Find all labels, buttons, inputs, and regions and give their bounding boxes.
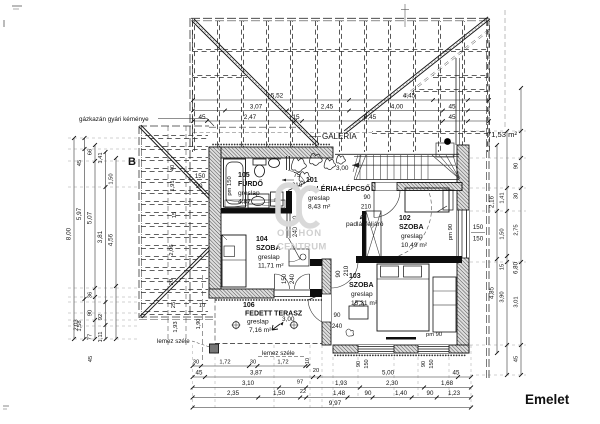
svg-text:90: 90 bbox=[335, 270, 342, 277]
svg-text:2,75: 2,75 bbox=[514, 224, 520, 235]
svg-text:20: 20 bbox=[313, 368, 319, 374]
svg-text:20: 20 bbox=[169, 279, 175, 285]
svg-text:greslap: greslap bbox=[247, 319, 269, 326]
svg-text:greslap: greslap bbox=[308, 195, 330, 202]
svg-text:lemez széle: lemez széle bbox=[157, 338, 190, 345]
svg-text:SZOBA: SZOBA bbox=[349, 282, 374, 289]
svg-text:GALÉRIA: GALÉRIA bbox=[322, 132, 357, 141]
svg-text:4,87: 4,87 bbox=[238, 199, 251, 206]
svg-text:greslap: greslap bbox=[258, 254, 280, 261]
svg-text:1,11: 1,11 bbox=[98, 332, 104, 343]
svg-text:106: 106 bbox=[243, 302, 255, 309]
svg-text:71,53 m²: 71,53 m² bbox=[487, 130, 517, 139]
svg-text:lemez széle: lemez széle bbox=[262, 350, 295, 357]
svg-text:2,45: 2,45 bbox=[321, 104, 334, 111]
svg-text:CENTRUM: CENTRUM bbox=[277, 242, 327, 253]
svg-text:9,97: 9,97 bbox=[329, 400, 342, 407]
svg-text:1,72: 1,72 bbox=[277, 360, 288, 366]
svg-text:45: 45 bbox=[453, 370, 460, 377]
svg-text:2,06: 2,06 bbox=[169, 244, 175, 255]
svg-text:3,07: 3,07 bbox=[250, 104, 263, 111]
svg-text:15: 15 bbox=[172, 212, 178, 218]
svg-text:2,03: 2,03 bbox=[74, 319, 80, 330]
svg-text:90: 90 bbox=[356, 361, 362, 367]
svg-text:1,50: 1,50 bbox=[500, 228, 506, 239]
svg-text:1,40: 1,40 bbox=[395, 390, 408, 397]
svg-text:30: 30 bbox=[514, 193, 520, 199]
svg-text:77: 77 bbox=[88, 334, 94, 340]
svg-text:1,50: 1,50 bbox=[109, 173, 115, 184]
svg-text:1,90: 1,90 bbox=[196, 319, 202, 330]
svg-text:8,43 m²: 8,43 m² bbox=[308, 204, 331, 211]
svg-text:90: 90 bbox=[364, 194, 371, 201]
svg-text:66: 66 bbox=[88, 149, 94, 155]
svg-text:6,80: 6,80 bbox=[513, 261, 520, 274]
svg-text:45: 45 bbox=[88, 356, 94, 362]
svg-text:4,00: 4,00 bbox=[391, 104, 404, 111]
svg-text:7,16 m²: 7,16 m² bbox=[249, 327, 272, 334]
svg-text:5,07: 5,07 bbox=[87, 211, 94, 224]
svg-text:1,41: 1,41 bbox=[98, 152, 104, 163]
svg-text:1,41: 1,41 bbox=[500, 192, 506, 203]
svg-text:103: 103 bbox=[349, 273, 361, 280]
svg-text:90: 90 bbox=[196, 183, 203, 190]
svg-text:10: 10 bbox=[199, 303, 205, 309]
svg-text:1,50: 1,50 bbox=[273, 390, 286, 397]
svg-text:pm 90: pm 90 bbox=[426, 332, 442, 338]
svg-text:40: 40 bbox=[170, 165, 176, 171]
svg-text:1,91: 1,91 bbox=[170, 180, 176, 191]
svg-text:1,93: 1,93 bbox=[335, 380, 348, 387]
svg-text:45: 45 bbox=[448, 114, 456, 121]
svg-text:150: 150 bbox=[473, 224, 484, 231]
svg-text:90: 90 bbox=[514, 163, 520, 169]
svg-text:75: 75 bbox=[294, 172, 301, 179]
svg-text:150: 150 bbox=[282, 273, 288, 284]
svg-text:6,45: 6,45 bbox=[364, 114, 377, 121]
svg-text:3,81: 3,81 bbox=[97, 230, 104, 243]
svg-text:90: 90 bbox=[421, 361, 427, 367]
svg-text:greslap: greslap bbox=[351, 291, 373, 298]
svg-text:45: 45 bbox=[448, 104, 456, 111]
svg-text:2,16: 2,16 bbox=[489, 195, 496, 208]
svg-text:45: 45 bbox=[196, 370, 203, 377]
svg-text:150: 150 bbox=[364, 359, 370, 368]
svg-text:97: 97 bbox=[297, 380, 303, 386]
svg-text:101: 101 bbox=[306, 177, 318, 184]
svg-text:2,30: 2,30 bbox=[386, 380, 399, 387]
svg-text:3,87: 3,87 bbox=[250, 370, 263, 377]
svg-text:90: 90 bbox=[365, 390, 372, 397]
svg-text:2,47: 2,47 bbox=[244, 114, 257, 121]
svg-text:10,49 m²: 10,49 m² bbox=[401, 242, 428, 249]
svg-text:102: 102 bbox=[399, 215, 411, 222]
svg-text:3,10: 3,10 bbox=[242, 380, 255, 387]
svg-text:greslap: greslap bbox=[401, 233, 423, 240]
svg-text:30: 30 bbox=[250, 360, 256, 366]
svg-text:4,56: 4,56 bbox=[108, 233, 115, 246]
svg-text:15: 15 bbox=[500, 264, 506, 270]
svg-text:FÜRDŐ: FÜRDŐ bbox=[238, 179, 263, 188]
svg-text:104: 104 bbox=[256, 236, 268, 243]
svg-text:150: 150 bbox=[473, 236, 484, 243]
svg-text:SZOBA: SZOBA bbox=[399, 224, 424, 231]
svg-text:150: 150 bbox=[429, 359, 435, 368]
svg-text:45: 45 bbox=[77, 160, 83, 166]
svg-text:240: 240 bbox=[290, 273, 296, 284]
svg-text:4,85: 4,85 bbox=[489, 286, 496, 299]
svg-text:3,90: 3,90 bbox=[500, 291, 506, 302]
svg-text:36: 36 bbox=[88, 292, 94, 298]
svg-text:90: 90 bbox=[427, 390, 434, 397]
svg-text:210: 210 bbox=[361, 204, 372, 211]
svg-text:25: 25 bbox=[171, 302, 177, 308]
svg-text:15,21 m²: 15,21 m² bbox=[351, 300, 378, 307]
svg-text:90: 90 bbox=[334, 312, 341, 319]
svg-text:3,00: 3,00 bbox=[336, 165, 349, 172]
svg-text:5,00: 5,00 bbox=[382, 370, 395, 377]
svg-text:gázkazán gyári kéménye: gázkazán gyári kéménye bbox=[79, 116, 149, 123]
svg-text:105: 105 bbox=[238, 172, 250, 179]
svg-text:240: 240 bbox=[332, 323, 343, 330]
svg-text:1,72: 1,72 bbox=[219, 360, 230, 366]
svg-text:1,48: 1,48 bbox=[333, 390, 346, 397]
svg-text:Emelet: Emelet bbox=[525, 392, 570, 407]
svg-text:92: 92 bbox=[98, 314, 104, 320]
svg-text:3,01: 3,01 bbox=[514, 296, 520, 307]
svg-text:padlásfeljáró: padlásfeljáró bbox=[346, 221, 384, 228]
svg-text:1,68: 1,68 bbox=[441, 380, 454, 387]
svg-text:30: 30 bbox=[193, 360, 199, 366]
svg-text:45: 45 bbox=[514, 356, 520, 362]
svg-text:150: 150 bbox=[195, 173, 206, 180]
svg-text:3,00: 3,00 bbox=[282, 316, 295, 323]
svg-text:5,97: 5,97 bbox=[76, 207, 83, 220]
svg-text:1,93: 1,93 bbox=[173, 321, 179, 332]
svg-text:greslap: greslap bbox=[238, 190, 260, 197]
svg-text:22: 22 bbox=[300, 389, 306, 395]
svg-text:B: B bbox=[128, 156, 136, 168]
svg-text:15: 15 bbox=[292, 114, 300, 121]
svg-text:1,23: 1,23 bbox=[448, 390, 461, 397]
svg-text:8,00: 8,00 bbox=[66, 227, 73, 240]
svg-text:pm 90: pm 90 bbox=[448, 224, 454, 240]
svg-text:2,35: 2,35 bbox=[227, 390, 240, 397]
svg-text:45: 45 bbox=[198, 114, 206, 121]
svg-text:11,71 m²: 11,71 m² bbox=[258, 263, 284, 270]
svg-text:4,45: 4,45 bbox=[403, 93, 416, 100]
svg-text:OTTHON: OTTHON bbox=[277, 228, 322, 239]
svg-text:5,52: 5,52 bbox=[271, 93, 284, 100]
svg-text:pm 150: pm 150 bbox=[227, 176, 233, 195]
